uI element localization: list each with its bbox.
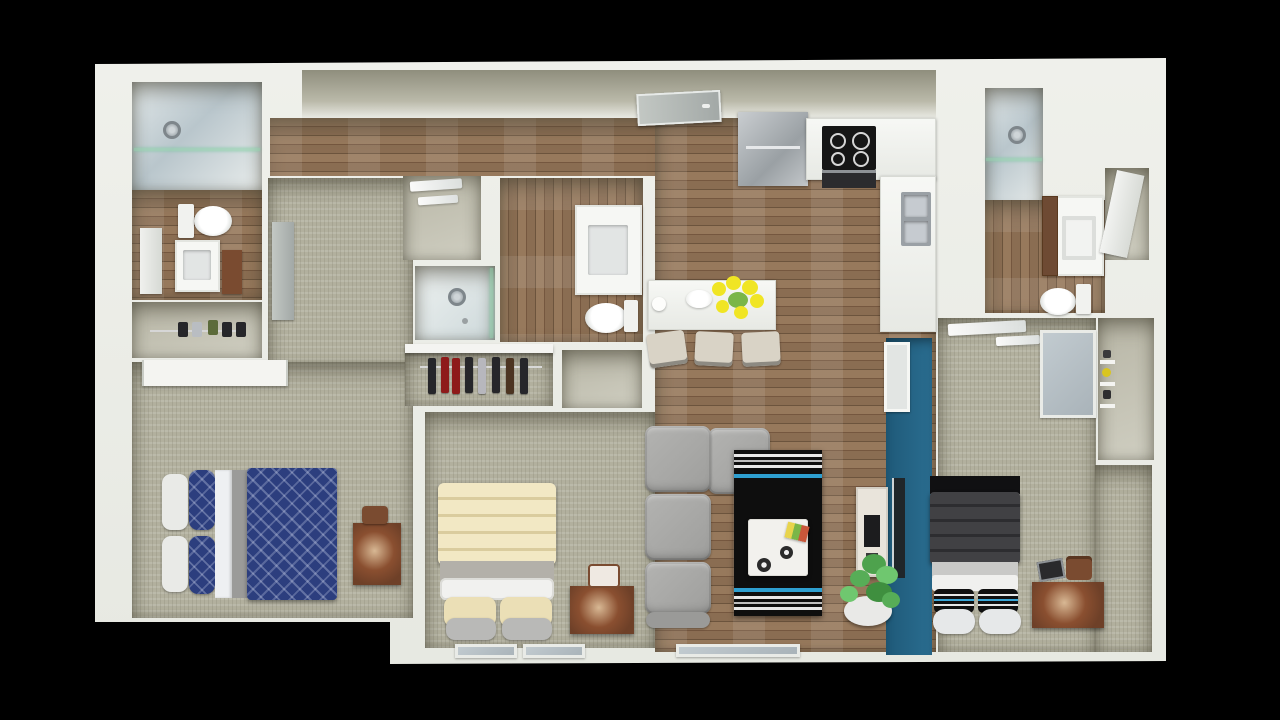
pillow-navy xyxy=(189,470,215,530)
floor-plan-outline xyxy=(0,0,1280,720)
decor-rosette-icon xyxy=(757,558,771,572)
closet-sliding-doors-left xyxy=(142,360,288,386)
toilet-icon xyxy=(194,206,232,236)
shoe-icon xyxy=(208,320,218,335)
bag-icon xyxy=(1066,556,1092,580)
pillow-white xyxy=(933,609,975,634)
toilet-icon xyxy=(585,303,627,333)
hanging-clothes-icon xyxy=(492,357,500,393)
stove-cooktop xyxy=(822,126,876,170)
stored-item-icon xyxy=(1102,368,1111,377)
plate-icon xyxy=(686,290,712,308)
shower-drain xyxy=(462,318,468,324)
shower-glass-center xyxy=(490,268,493,338)
desk-left xyxy=(353,523,401,585)
bed-left-sheet xyxy=(215,470,232,598)
hanging-clothes-icon xyxy=(506,358,514,394)
pillow-white xyxy=(979,609,1021,634)
vanity-right-cabinet xyxy=(1042,196,1058,276)
bed-left-blanket-gray xyxy=(232,470,247,598)
pillow-white xyxy=(162,536,188,592)
hanging-clothes-icon xyxy=(465,357,473,393)
window-icon xyxy=(523,644,585,658)
sofa-armrest xyxy=(646,612,710,628)
closet-right-shelf xyxy=(1100,360,1115,364)
floor-plan-stage xyxy=(0,0,1280,720)
toilet-tank-right xyxy=(1076,284,1091,314)
hanging-clothes-icon xyxy=(452,358,460,394)
closet-right-floor xyxy=(1098,318,1154,460)
top-wall-face xyxy=(302,70,936,120)
shower-head-icon xyxy=(448,288,466,306)
toilet-tank-center xyxy=(624,300,638,332)
hallway-floor xyxy=(270,118,662,176)
patio-glass-door xyxy=(676,644,800,657)
dining-chair xyxy=(646,330,688,369)
sofa-seat xyxy=(645,562,711,614)
bathroom-left-door xyxy=(140,228,162,294)
bed-middle-comforter xyxy=(438,483,556,565)
desk-middle xyxy=(570,586,634,634)
stored-item-icon xyxy=(1103,390,1111,399)
chair-left xyxy=(362,506,388,524)
refrigerator-handle-icon xyxy=(746,146,800,149)
decor-rosette-icon xyxy=(780,546,793,559)
hanging-clothes-icon xyxy=(441,357,449,393)
refrigerator xyxy=(738,112,808,186)
dining-chair xyxy=(741,331,781,367)
hanging-clothes-icon xyxy=(520,358,528,394)
closet-right-shelf xyxy=(1100,404,1115,408)
window-shade xyxy=(1040,330,1096,418)
burner-icon xyxy=(830,133,846,149)
flower-bouquet-icon xyxy=(710,276,766,322)
sink-left xyxy=(183,250,211,280)
sofa-seat xyxy=(645,426,711,492)
sink-basin xyxy=(904,195,928,217)
sink-right xyxy=(1062,216,1096,260)
bathroom-right-shower xyxy=(985,88,1043,210)
closet-right-shelf xyxy=(1100,382,1115,386)
shoe-icon xyxy=(178,322,188,337)
hanging-clothes-icon xyxy=(428,358,436,394)
bed-right-comforter xyxy=(930,492,1020,564)
wall-mirror-panel xyxy=(884,342,910,412)
hanging-clothes-icon xyxy=(478,358,486,394)
shoe-icon xyxy=(192,322,202,337)
pillow-gray xyxy=(502,618,552,640)
kitchen-sink-double xyxy=(901,192,931,246)
sofa-seat xyxy=(645,494,711,560)
entry-door-handle-icon xyxy=(702,104,710,108)
shoe-icon xyxy=(236,322,246,337)
shower-head-icon xyxy=(163,121,181,139)
cabinet-left xyxy=(222,250,242,294)
entry-door xyxy=(636,90,722,126)
window-icon xyxy=(455,644,517,658)
pillow-white xyxy=(162,474,188,530)
burner-icon xyxy=(853,151,869,167)
oven-door xyxy=(822,170,876,188)
pillow-gray xyxy=(446,618,496,640)
toilet-tank-left xyxy=(178,204,194,238)
sink-basin xyxy=(904,221,928,243)
bedroom-middle-entry-floor xyxy=(562,350,642,408)
burner-icon xyxy=(831,152,845,166)
shower-glass-left xyxy=(134,148,260,151)
tv-icon xyxy=(864,515,880,547)
stored-item-icon xyxy=(1103,350,1111,358)
cup-icon xyxy=(652,297,666,311)
bed-left-comforter xyxy=(247,468,337,600)
shoe-icon xyxy=(222,322,232,337)
desk-right xyxy=(1032,582,1104,628)
dining-chair xyxy=(694,331,734,367)
closet-center-shelf xyxy=(405,344,553,353)
pillow-navy xyxy=(189,536,215,594)
bedroom-left-door xyxy=(272,222,294,320)
chair-middle xyxy=(588,564,620,588)
toilet-icon xyxy=(1040,288,1076,315)
burner-icon xyxy=(852,132,870,150)
shower-glass-right xyxy=(986,158,1042,161)
potted-plant xyxy=(836,552,902,632)
sink-center xyxy=(588,225,628,275)
shower-head-icon xyxy=(1008,126,1026,144)
bathroom-left-shower xyxy=(132,82,262,190)
